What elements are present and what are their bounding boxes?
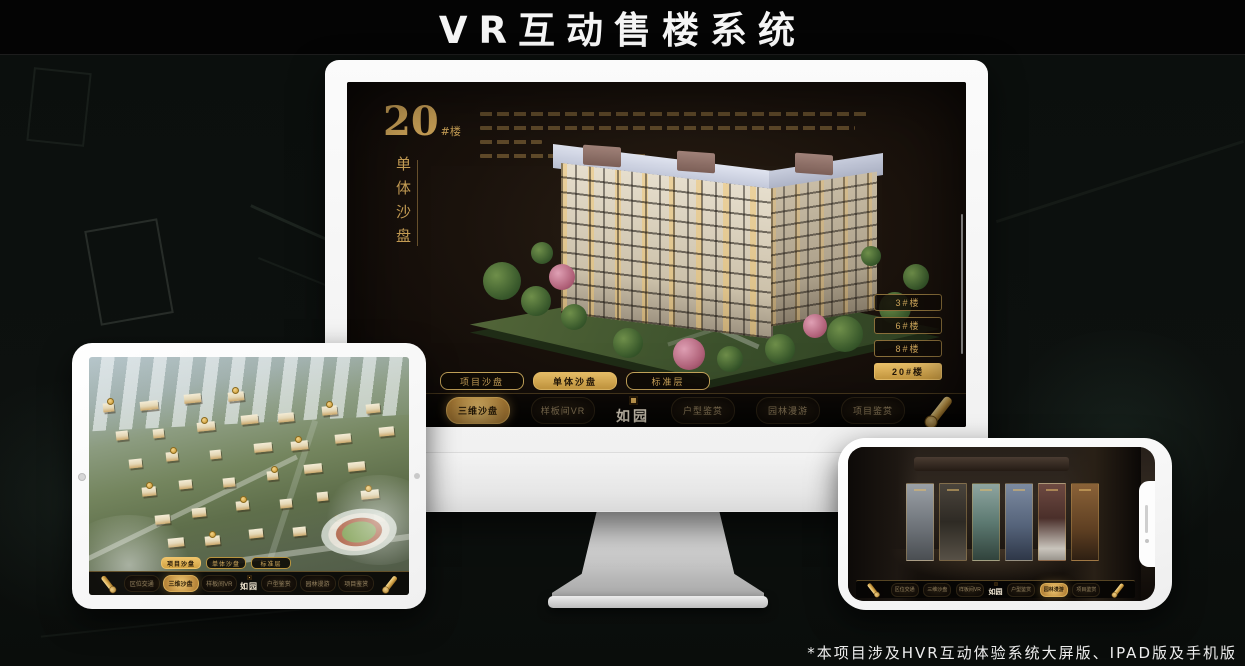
tablet-view-tab-group: 项目沙盘 单体沙盘 标准层 [161,557,291,569]
scroll-icon[interactable] [864,581,882,599]
tablet-nav-item-garden-roam[interactable]: 园林漫游 [300,575,336,592]
phone-nav-item-project-gallery[interactable]: 项目鉴赏 [1072,583,1100,597]
model-roof-cap [795,153,833,176]
aerial-building [278,412,295,423]
phone-nav-item-location[interactable]: 区位交通 [891,583,919,597]
nav-item-garden-roam[interactable]: 园林漫游 [756,397,820,424]
phone-camera-icon [1145,539,1149,543]
phone-screen: 区位交通 三维沙盘 样板间VR 如园 户型鉴赏 园林漫游 项目鉴赏 [848,447,1155,601]
gallery-panel[interactable] [972,483,1000,561]
tablet-tab-project-sandbox[interactable]: 项目沙盘 [161,557,201,569]
tablet-nav-item-floorplans[interactable]: 户型鉴赏 [261,575,297,592]
aerial-building [153,428,165,438]
aerial-building [366,403,381,413]
building-button-8[interactable]: 8#楼 [874,340,942,357]
building-number-marker[interactable] [170,447,177,454]
aerial-building [335,433,352,444]
tab-standard-floor[interactable]: 标准层 [626,372,710,390]
page-title: VR互动售楼系统 [439,0,806,54]
tree [717,346,743,372]
phone-nav-item-floorplans[interactable]: 户型鉴赏 [1007,583,1035,597]
model-roof-cap [677,151,715,174]
tree [827,316,863,352]
monitor-navbar: 区位交通 三维沙盘 样板间VR 如园 户型鉴赏 园林漫游 项目鉴赏 [347,393,966,427]
block-number-value: 20 [383,98,439,145]
aerial-building [241,414,259,425]
tablet-nav-item-location[interactable]: 区位交通 [124,575,160,592]
tree [861,246,881,266]
view-tab-group: 项目沙盘 单体沙盘 标准层 [440,372,710,390]
aerial-building [210,449,222,459]
background-frame-decor [84,218,174,325]
blossom-tree [803,314,827,338]
logo-text: 如园 [616,406,650,426]
gallery-panel[interactable] [906,483,934,561]
aerial-building [129,458,143,468]
aerial-building [379,426,395,437]
scroll-icon[interactable] [97,573,118,595]
block-number: 20#楼 [383,102,461,142]
building-button-3[interactable]: 3#楼 [874,294,942,311]
nav-item-project-gallery[interactable]: 项目鉴赏 [841,397,905,424]
building-number-marker[interactable] [326,401,333,408]
aerial-building [140,400,159,411]
aerial-building [304,463,323,474]
subtitle-rule [417,160,418,246]
monitor-screen: 20#楼 单体沙盘 [347,82,966,427]
logo-seal-icon [629,396,638,405]
building-number-marker[interactable] [240,496,247,503]
phone-device: 区位交通 三维沙盘 样板间VR 如园 户型鉴赏 园林漫游 项目鉴赏 [838,438,1172,610]
intro-text-line [480,140,542,144]
tree [483,262,521,300]
aerial-building [280,498,293,508]
gallery-panels [906,483,1099,561]
logo-text: 如园 [989,587,1003,597]
logo-seal-icon [994,582,998,586]
tablet-tab-standard-floor[interactable]: 标准层 [251,557,291,569]
phone-nav-item-3d-sandbox[interactable]: 三维沙盘 [923,583,951,597]
footnote: *本项目涉及HVR互动体验系统大屏版、IPAD版及手机版 [807,642,1237,663]
background-road-line [996,140,1244,223]
building-number-marker[interactable] [107,398,114,405]
blossom-tree [549,264,575,290]
scrollbar[interactable] [961,214,963,354]
background-frame-decor [26,67,91,147]
model-facade-side [771,172,877,327]
scene-gate-beam [914,457,1069,471]
tablet-nav-item-3d-sandbox[interactable]: 三维沙盘 [163,575,199,592]
building-button-group: 3#楼 6#楼 8#楼 20#楼 [874,294,942,380]
building-button-6[interactable]: 6#楼 [874,317,942,334]
poster-stage: VR互动售楼系统 20#楼 单体沙盘 [0,0,1245,666]
monitor-stand [552,512,764,598]
phone-nav-item-garden-roam[interactable]: 园林漫游 [1040,583,1068,597]
tablet-app-logo[interactable]: 如园 [240,575,258,592]
aerial-building [184,393,202,404]
gallery-panel[interactable] [939,483,967,561]
building-button-20[interactable]: 20#楼 [874,363,942,380]
title-band: VR互动售楼系统 [0,0,1245,55]
aerial-building [249,528,264,538]
building-number-marker[interactable] [201,417,208,424]
blossom-tree [673,338,705,370]
tablet-device: 项目沙盘 单体沙盘 标准层 区位交通 三维沙盘 样板间VR 如园 户型鉴赏 园林… [72,343,426,609]
aerial-building [293,526,307,536]
phone-navbar: 区位交通 三维沙盘 样板间VR 如园 户型鉴赏 园林漫游 项目鉴赏 [856,580,1135,598]
tablet-navbar: 区位交通 三维沙盘 样板间VR 如园 户型鉴赏 园林漫游 项目鉴赏 [89,571,409,595]
tree [903,264,929,290]
tree [613,328,643,358]
tablet-home-button[interactable] [414,473,420,479]
model-facade-front [561,163,773,339]
aerial-building [223,477,236,487]
scroll-icon[interactable] [1109,581,1127,599]
nav-item-showroom-vr[interactable]: 样板间VR [531,397,595,424]
gallery-panel[interactable] [1005,483,1033,561]
gallery-panel[interactable] [1038,483,1066,561]
app-logo[interactable]: 如园 [616,396,650,426]
aerial-building [192,507,207,517]
building-3d-model[interactable] [465,146,945,396]
block-number-suffix: #楼 [441,125,461,138]
tab-single-sandbox[interactable]: 单体沙盘 [533,372,617,390]
nav-item-3d-sandbox[interactable]: 三维沙盘 [446,397,510,424]
tree [521,286,551,316]
tab-project-sandbox[interactable]: 项目沙盘 [440,372,524,390]
intro-text-line [480,126,855,130]
aerial-building [179,479,193,489]
aerial-building [116,430,129,440]
tree [561,304,587,330]
phone-speaker-icon [1145,505,1148,533]
logo-text: 如园 [240,581,258,592]
block-subtitle: 单体沙盘 [393,156,414,252]
phone-nav-item-showroom-vr[interactable]: 样板间VR [956,583,984,597]
gallery-panel[interactable] [1071,483,1099,561]
nav-item-floorplans[interactable]: 户型鉴赏 [671,397,735,424]
aerial-building [254,442,273,453]
tablet-screen: 项目沙盘 单体沙盘 标准层 区位交通 三维沙盘 样板间VR 如园 户型鉴赏 园林… [89,357,409,595]
tablet-nav-item-project-gallery[interactable]: 项目鉴赏 [338,575,374,592]
tree [765,334,795,364]
logo-seal-icon [247,575,252,580]
monitor-stand-base [548,596,768,608]
building-number-marker[interactable] [209,531,216,538]
tablet-tab-single-sandbox[interactable]: 单体沙盘 [206,557,246,569]
building-number-marker[interactable] [232,387,239,394]
tablet-nav-item-showroom-vr[interactable]: 样板间VR [201,575,237,592]
building-number-marker[interactable] [271,466,278,473]
tablet-camera-icon [78,473,86,481]
phone-notch [1139,481,1155,567]
tree [531,242,553,264]
model-roof-cap [583,145,621,168]
scroll-icon[interactable] [379,573,400,595]
aerial-building [348,461,366,472]
phone-app-logo[interactable]: 如园 [989,582,1003,597]
building-number-marker[interactable] [146,482,153,489]
building-number-marker[interactable] [295,436,302,443]
scroll-icon[interactable] [920,391,959,427]
intro-text-line [480,112,868,116]
